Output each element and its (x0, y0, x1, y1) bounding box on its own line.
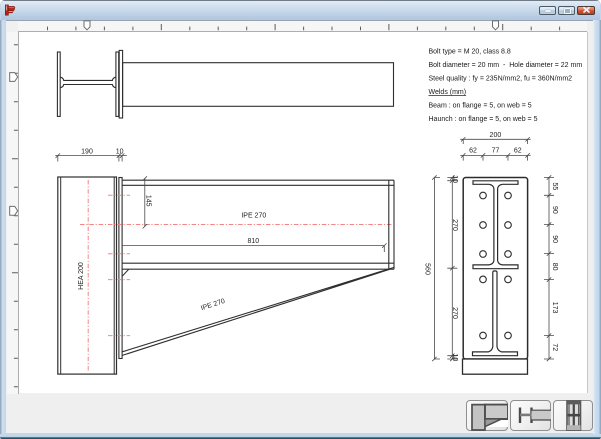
svg-text:62: 62 (469, 148, 477, 155)
svg-text:200: 200 (490, 132, 502, 139)
svg-text:270: 270 (451, 307, 458, 319)
svg-text:55: 55 (551, 183, 558, 191)
svg-text:Welds (mm): Welds (mm) (429, 89, 467, 96)
svg-text:810: 810 (247, 238, 259, 245)
svg-text:10: 10 (116, 149, 124, 156)
svg-text:10: 10 (451, 354, 458, 362)
svg-text:HEA 200: HEA 200 (78, 262, 85, 290)
svg-text:173: 173 (551, 302, 558, 314)
svg-text:IPE 270: IPE 270 (200, 298, 226, 312)
svg-text:Beam : on flange = 5, on web =: Beam : on flange = 5, on web = 5 (429, 103, 532, 110)
svg-text:Steel quality : fy = 235N/mm2,: Steel quality : fy = 235N/mm2, fu = 360N… (429, 76, 573, 83)
svg-text:270: 270 (451, 219, 458, 231)
svg-text:90: 90 (551, 235, 558, 243)
svg-text:90: 90 (551, 206, 558, 214)
svg-text:62: 62 (514, 148, 522, 155)
svg-text:77: 77 (492, 148, 500, 155)
svg-text:145: 145 (145, 195, 152, 207)
svg-text:560: 560 (424, 263, 431, 275)
svg-text:10: 10 (451, 175, 458, 183)
svg-text:Bolt type = M 20, class 8.8: Bolt type = M 20, class 8.8 (429, 49, 511, 56)
svg-text:72: 72 (551, 343, 558, 351)
svg-text:IPE 270: IPE 270 (241, 212, 266, 219)
svg-text:Haunch : on flange = 5, on web: Haunch : on flange = 5, on web = 5 (429, 116, 538, 123)
svg-text:80: 80 (551, 263, 558, 271)
svg-text:190: 190 (81, 149, 93, 156)
svg-text:Bolt diameter = 20 mm - Hole: Bolt diameter = 20 mm - Hole diameter = … (429, 62, 583, 69)
